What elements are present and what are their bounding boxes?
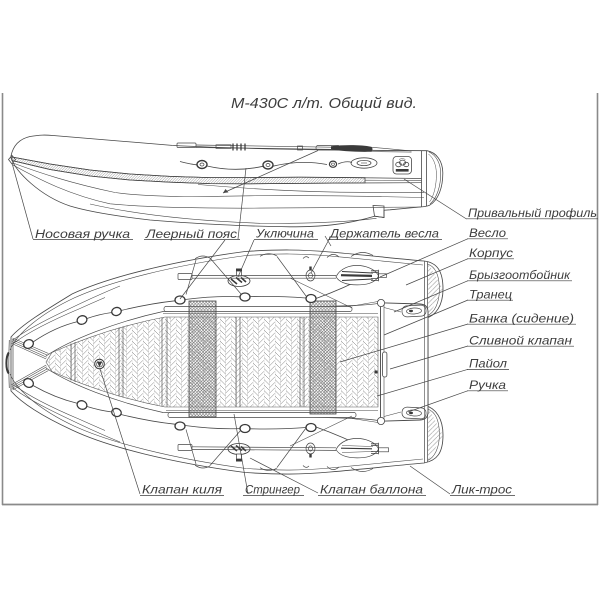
svg-text:Держатель весла: Держатель весла (328, 229, 439, 241)
svg-text:Сливной клапан: Сливной клапан (469, 336, 573, 348)
svg-text:Носовая ручка: Носовая ручка (35, 229, 130, 241)
svg-text:Весло: Весло (469, 228, 507, 240)
svg-text:Стрингер: Стрингер (245, 485, 301, 497)
svg-text:Ручка: Ручка (469, 380, 506, 392)
svg-text:Банка (сидение): Банка (сидение) (469, 314, 574, 326)
svg-text:Транец: Транец (469, 290, 512, 302)
svg-text:Привальный профиль: Привальный профиль (468, 208, 597, 220)
svg-text:Брызгоотбойник: Брызгоотбойник (469, 270, 571, 282)
svg-text:Клапан киля: Клапан киля (142, 485, 222, 497)
svg-text:Леерный пояс: Леерный пояс (145, 229, 237, 241)
svg-text:Уключина: Уключина (255, 229, 314, 241)
svg-text:Лик-трос: Лик-трос (451, 485, 512, 497)
svg-text:М-430С л/т. Общий вид.: М-430С л/т. Общий вид. (231, 95, 417, 112)
svg-text:Клапан баллона: Клапан баллона (320, 485, 423, 497)
svg-text:Корпус: Корпус (469, 248, 513, 260)
svg-text:Пайол: Пайол (469, 359, 508, 371)
